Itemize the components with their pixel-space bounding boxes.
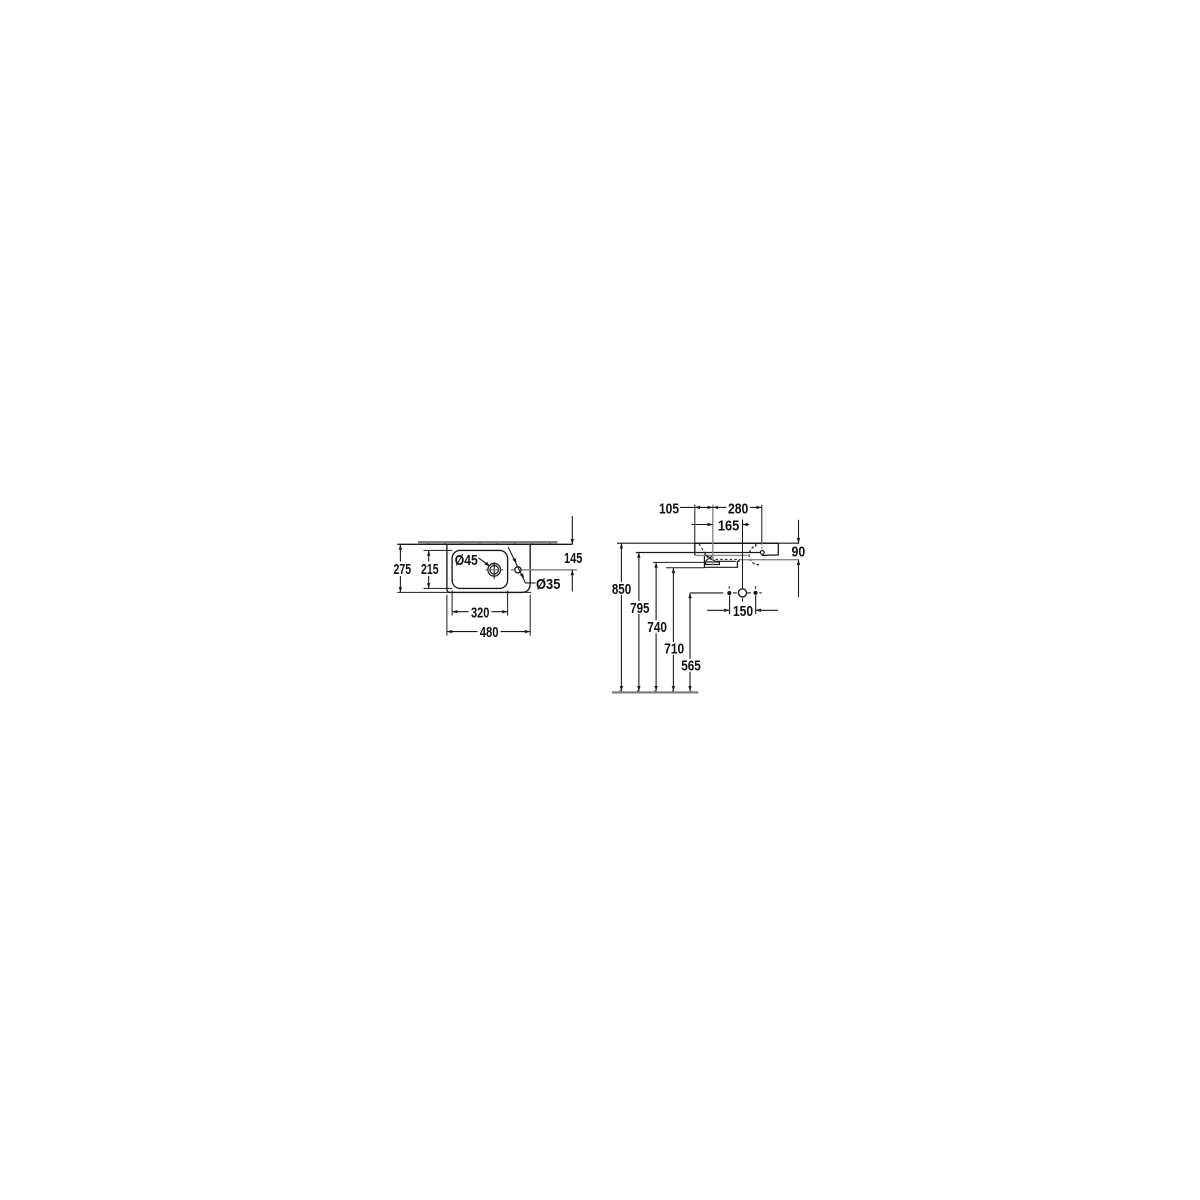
svg-text:150: 150 xyxy=(733,603,753,620)
svg-text:215: 215 xyxy=(421,561,439,578)
svg-text:Ø45: Ø45 xyxy=(455,552,478,569)
svg-text:Ø35: Ø35 xyxy=(536,576,560,593)
svg-text:850: 850 xyxy=(612,581,631,598)
svg-text:275: 275 xyxy=(394,561,412,578)
svg-text:90: 90 xyxy=(792,544,806,561)
svg-text:795: 795 xyxy=(630,600,649,617)
svg-text:165: 165 xyxy=(718,517,740,534)
svg-text:320: 320 xyxy=(471,604,489,621)
svg-text:105: 105 xyxy=(659,500,679,517)
svg-text:145: 145 xyxy=(564,550,582,567)
svg-text:710: 710 xyxy=(664,641,684,658)
svg-text:565: 565 xyxy=(681,658,701,675)
svg-text:480: 480 xyxy=(480,624,499,641)
svg-text:280: 280 xyxy=(728,500,748,517)
svg-text:740: 740 xyxy=(647,619,667,636)
